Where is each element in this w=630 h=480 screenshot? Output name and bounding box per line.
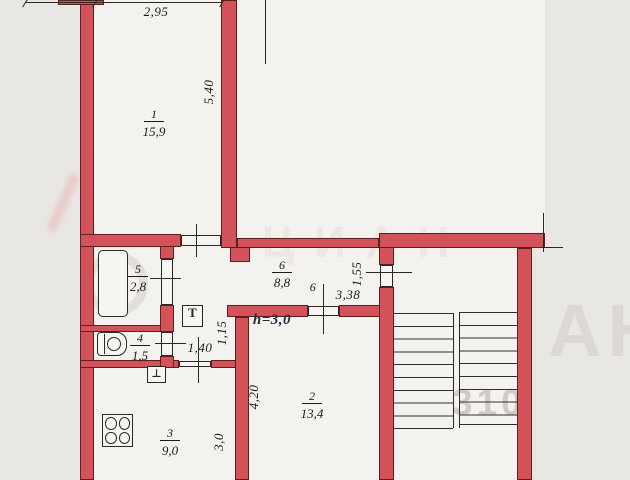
heater-icon: Т xyxy=(182,305,203,327)
room-label-6: 6 8,8 xyxy=(258,256,306,290)
door-kitchen xyxy=(179,361,211,367)
ext-line-corner-h xyxy=(543,247,563,248)
door-wc xyxy=(161,332,173,356)
room-2-number: 2 xyxy=(302,390,322,404)
wall-upper-right xyxy=(379,233,545,248)
stairs-right-flight xyxy=(460,312,517,425)
room-3-area: 9,0 xyxy=(146,443,194,458)
room-5-number: 5 xyxy=(128,263,148,277)
wall-bath-hall-b xyxy=(160,305,174,332)
room-4-number: 4 xyxy=(130,332,150,346)
stove-icon xyxy=(102,414,133,447)
dim-room1-depth: 5,40 xyxy=(201,70,217,114)
wall-hall-pier xyxy=(230,247,250,262)
dim-kitchen-door: 1,40 xyxy=(183,340,217,356)
watermark-edge-letters: АН xyxy=(548,288,630,373)
ext-line-room1-door xyxy=(196,224,197,257)
dim-line-top xyxy=(25,2,222,3)
stairs-stringer-a xyxy=(453,313,454,428)
room-6-number: 6 xyxy=(272,259,292,273)
room-label-1: 1 15,9 xyxy=(126,105,182,139)
room-2-area: 13,4 xyxy=(286,406,338,421)
door-entrance xyxy=(380,265,393,287)
wall-stair-left-lower xyxy=(379,287,394,480)
room-label-5: 5 2,8 xyxy=(116,260,160,294)
watermark-streak xyxy=(46,173,80,234)
ext-line-top xyxy=(265,0,266,64)
wall-bath-hall-a xyxy=(160,246,174,259)
room-3-number: 3 xyxy=(160,427,180,441)
wall-stair-left-upper xyxy=(379,247,394,265)
room-label-4: 4 1,5 xyxy=(118,329,162,363)
dim-room2-width: 3,38 xyxy=(322,287,374,303)
room-label-3: 3 9,0 xyxy=(146,424,194,458)
door-bathroom xyxy=(161,259,173,305)
stairs-stringer-b xyxy=(459,312,460,428)
stairs-left-flight xyxy=(394,313,453,429)
sink-glyph: ⊥ xyxy=(148,367,165,380)
wall-hall-top xyxy=(237,238,379,248)
wall-room1-right xyxy=(221,0,237,248)
room-1-area: 15,9 xyxy=(126,124,182,139)
heater-glyph: Т xyxy=(183,305,202,321)
dim-kitchen-width: 3,0 xyxy=(211,420,227,464)
room-label-2: 2 13,4 xyxy=(286,387,338,421)
room-4-area: 1,5 xyxy=(118,348,162,363)
dim-room2-depth: 4,20 xyxy=(246,375,262,419)
door-room1 xyxy=(181,235,221,246)
dim-room1-width: 2,95 xyxy=(128,4,184,20)
ext-line-entry xyxy=(366,272,412,273)
toilet-tank-line xyxy=(104,334,105,354)
room-6-area: 8,8 xyxy=(258,275,306,290)
ceiling-height-note: h=3,0 xyxy=(246,312,298,329)
floor-plan: ЦИАН АН 310 Т ⊥ xyxy=(0,0,630,480)
sink-icon: ⊥ xyxy=(147,366,166,383)
stove-burners xyxy=(103,415,132,446)
wall-stair-right xyxy=(517,248,532,480)
room-1-number: 1 xyxy=(144,108,164,122)
room-5-area: 2,8 xyxy=(116,279,160,294)
door-mark-6: 6 xyxy=(305,280,321,295)
